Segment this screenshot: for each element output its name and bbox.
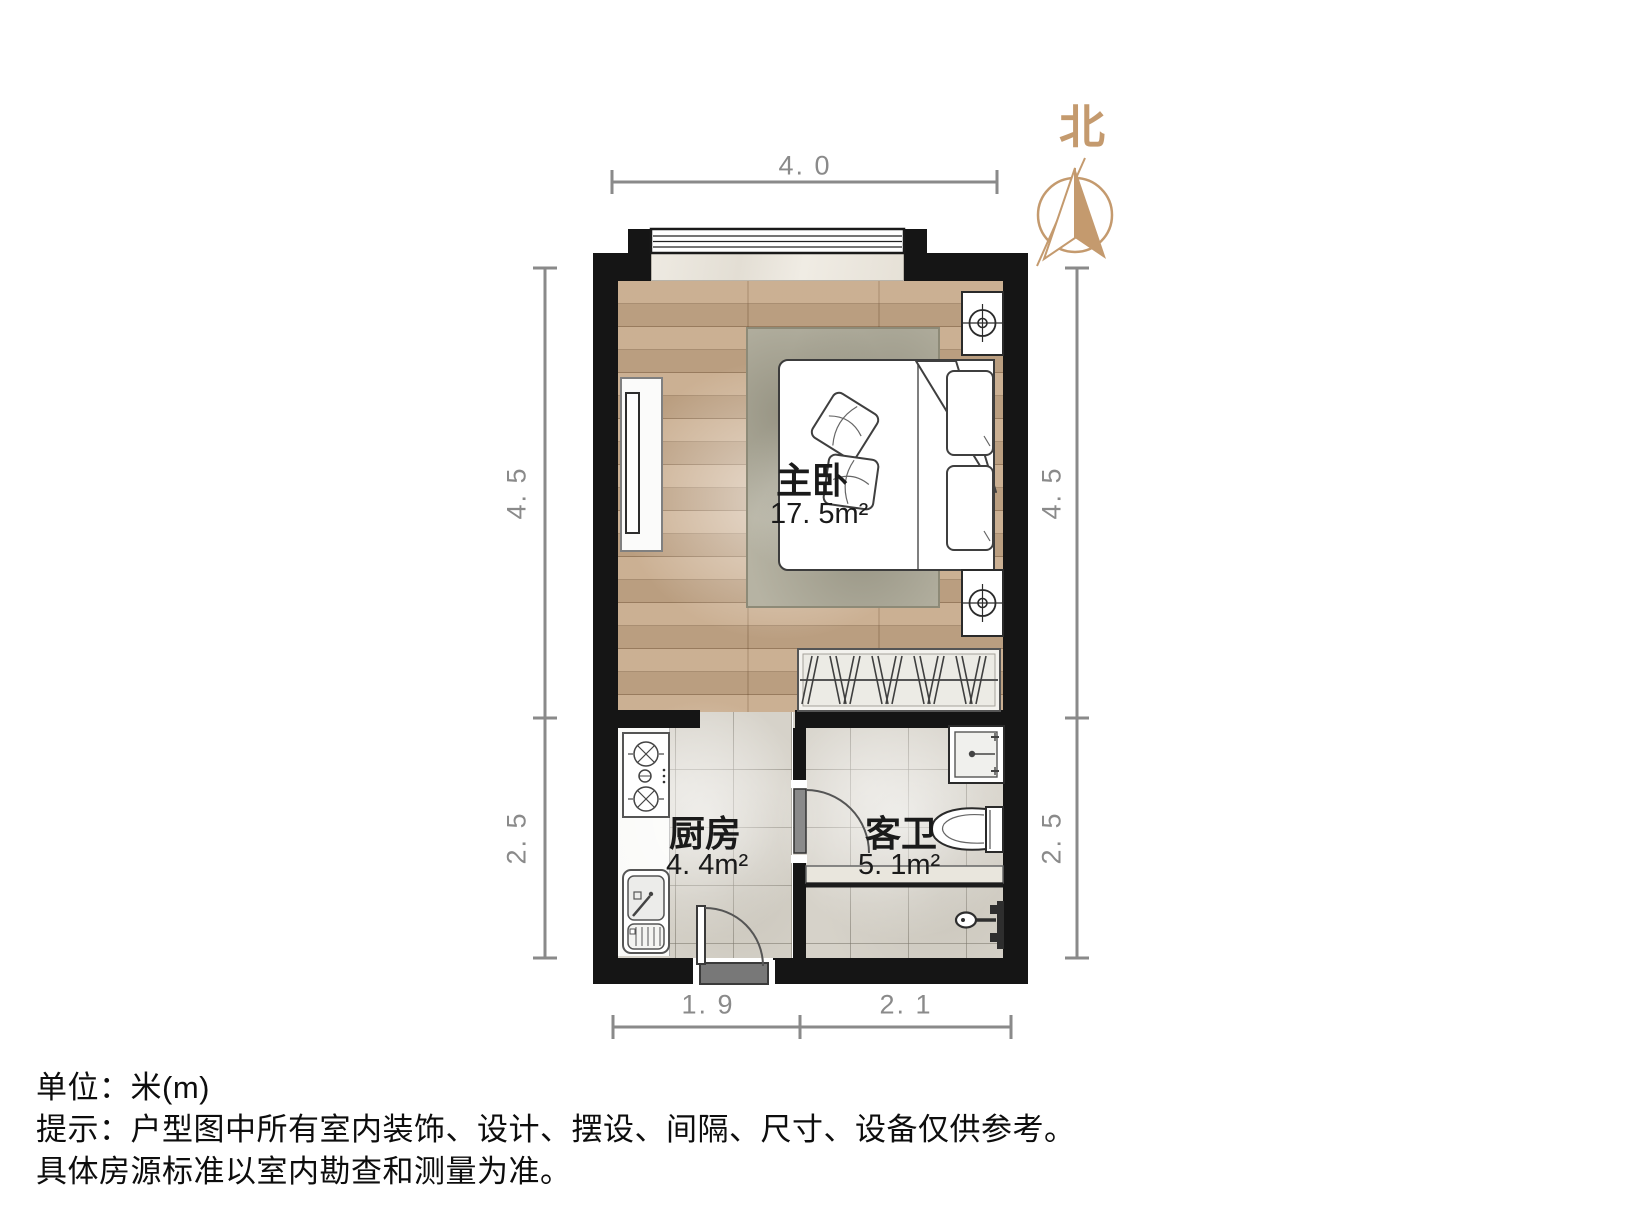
room-area-bedroom: 17. 5m²: [770, 498, 868, 531]
footer-unit-line: 单位：米(m): [36, 1062, 210, 1107]
entry-door: [693, 906, 775, 986]
dimension-left-lower: 2. 5: [502, 811, 533, 864]
room-area-bathroom: 5. 1m²: [858, 849, 940, 882]
stove: [623, 733, 669, 817]
wardrobe: [798, 649, 1000, 711]
kitchen-sink: [623, 870, 669, 953]
flue-shaft: [962, 570, 1003, 636]
flue-shaft: [962, 292, 1003, 355]
floor-plan-page: 北 4. 0 4. 5 2. 5 4. 5 2. 5 1. 9 2. 1 主卧 …: [0, 0, 1625, 1219]
dimension-bottom-right: 2. 1: [879, 990, 932, 1021]
dimension-lines: [533, 170, 1089, 1039]
dimension-right-lower: 2. 5: [1037, 811, 1068, 864]
room-label-bedroom: 主卧: [776, 452, 848, 504]
footer-disclaimer-line2: 具体房源标准以室内勘查和测量为准。: [36, 1146, 572, 1191]
footer-disclaimer-line1: 提示：户型图中所有室内装饰、设计、摆设、间隔、尺寸、设备仅供参考。: [36, 1104, 1076, 1149]
bay-window: [651, 229, 904, 253]
room-area-kitchen: 4. 4m²: [666, 849, 748, 882]
washbasin: [949, 726, 1004, 783]
north-compass: [1037, 158, 1112, 266]
north-label: 北: [1059, 91, 1105, 157]
dimension-bottom-left: 1. 9: [681, 990, 734, 1021]
toilet: [932, 807, 1003, 852]
dimension-left-upper: 4. 5: [502, 466, 533, 519]
plan-graphics: [0, 0, 1625, 1219]
dimension-right-upper: 4. 5: [1037, 466, 1068, 519]
dimension-top: 4. 0: [778, 151, 831, 182]
shower: [956, 901, 1004, 949]
